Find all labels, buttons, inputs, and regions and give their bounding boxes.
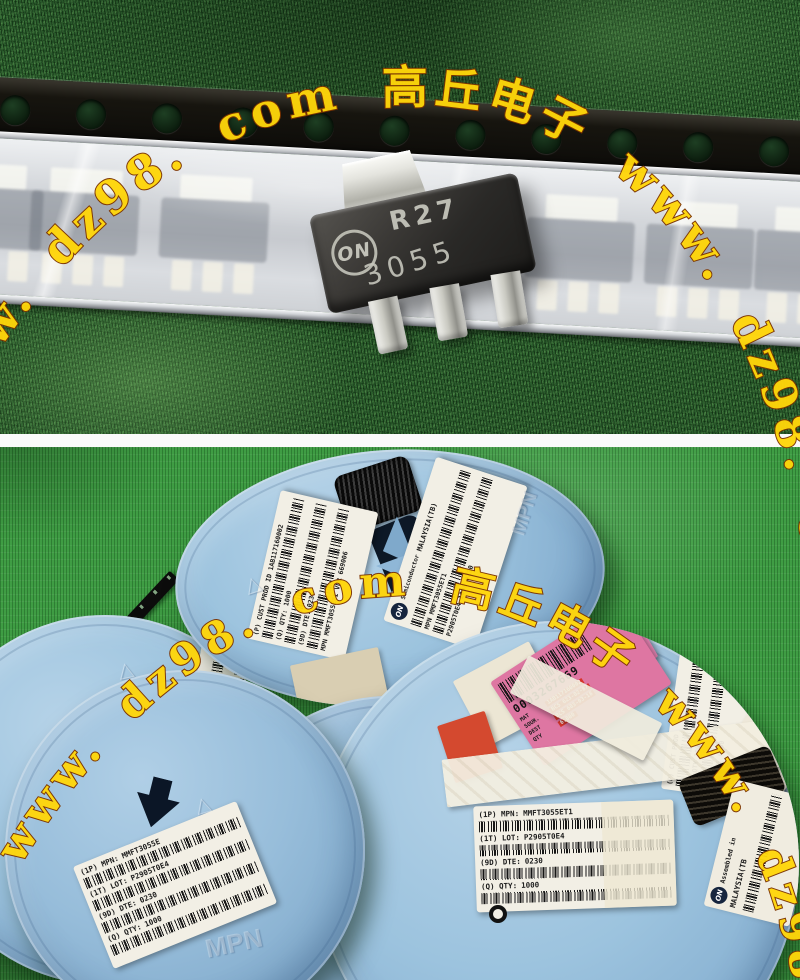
- label-value: 1000: [521, 880, 539, 890]
- label-key: (1T) LOT:: [479, 833, 520, 843]
- sprocket-hole: [303, 111, 335, 143]
- pocket-component: [27, 166, 141, 290]
- label-key: (Q) QTY:: [481, 881, 517, 891]
- sprocket-hole: [758, 135, 790, 167]
- on-logo-icon: ON: [709, 885, 730, 906]
- chip-lead: [429, 283, 468, 341]
- sprocket-hole: [531, 123, 563, 155]
- pocket-component: [642, 200, 756, 324]
- label-origin: MALAYSIA(TB): [415, 502, 438, 553]
- pocket-component: [752, 205, 800, 329]
- sprocket-hole: [227, 107, 259, 139]
- pocket-component: [157, 173, 271, 297]
- sprocket-hole: [0, 94, 31, 126]
- pocket-component: [0, 161, 45, 285]
- sprocket-hole: [379, 115, 411, 147]
- label-value: P2905T0E4: [524, 831, 565, 841]
- photo-divider: [0, 434, 800, 447]
- label-brand: Semiconductor: [400, 554, 421, 601]
- label-key: (9D) DTE:: [480, 857, 521, 867]
- label-key: (1P) MPN:: [478, 809, 519, 819]
- hub-arrow-cutout: [130, 773, 185, 832]
- chip-marking-line1: R27: [387, 193, 463, 237]
- label-top-reel-left: (P) CUST PROD ID 1AB117160002 (Q) QTY: 1…: [247, 490, 379, 661]
- chip-lead: [490, 270, 528, 328]
- label-value: MMFT3055ET1: [523, 807, 573, 818]
- sprocket-hole: [75, 98, 107, 130]
- label-value: 0230: [525, 856, 543, 866]
- label-right-front: (1P) MPN:MMFT3055ET1 (1T) LOT:P2905T0E4 …: [473, 800, 677, 913]
- photo-bottom-reels-on-felt: △ (P) CUST PROD ID (Q) QTY: 1000 (9D) DT…: [0, 447, 800, 980]
- hub-hole-emboss: [489, 905, 507, 923]
- chip-lead: [368, 296, 409, 355]
- sprocket-hole: [151, 103, 183, 135]
- sprocket-hole: [682, 131, 714, 163]
- photo-top-tape-on-grass: ON R27 3055: [0, 0, 800, 434]
- on-logo-icon: ON: [389, 601, 410, 622]
- tape-over-label: [601, 800, 677, 908]
- sprocket-hole: [607, 127, 639, 159]
- photo-collage: ON R27 3055 △ (P) CUST PROD ID (Q) QTY: …: [0, 0, 800, 980]
